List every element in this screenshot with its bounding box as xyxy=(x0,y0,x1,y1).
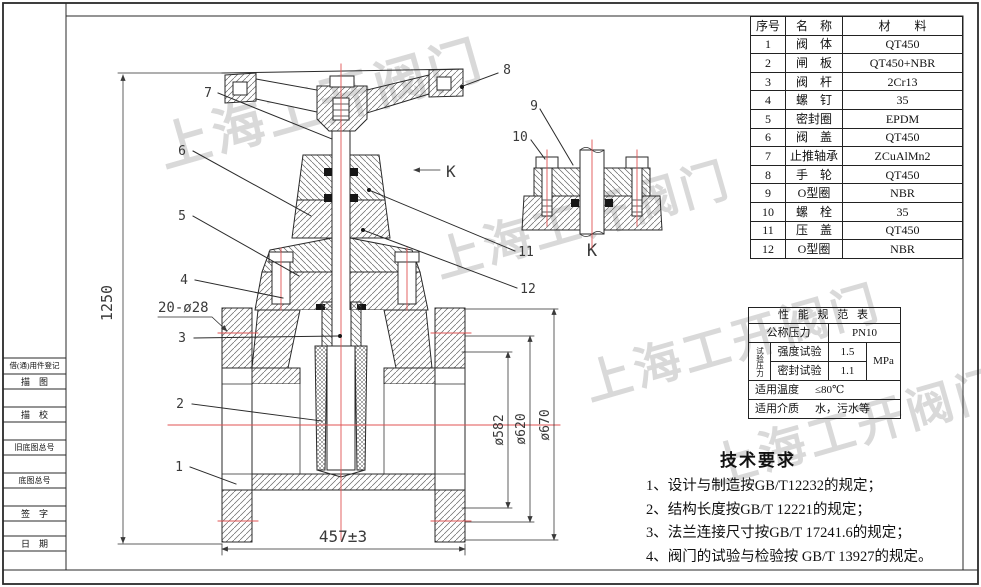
balloon-1: 1 xyxy=(175,460,183,475)
temp-value: ≤80℃ xyxy=(815,385,844,396)
balloon-9: 9 xyxy=(530,99,538,114)
strength-test-label: 强度试验 xyxy=(771,343,829,362)
balloon-11: 11 xyxy=(518,245,534,260)
table-row: 11压 盖QT450 xyxy=(751,221,963,240)
nominal-pressure-value: PN10 xyxy=(829,324,901,343)
table-row: 4螺 钉35 xyxy=(751,91,963,110)
strip-signature: 签 字 xyxy=(3,508,66,520)
balloon-10: 10 xyxy=(512,130,528,145)
medium-row: 适用介质 水，污水等 xyxy=(749,400,901,419)
col-material: 材 料 xyxy=(843,17,963,36)
strip-tracing: 描 图 xyxy=(3,376,66,388)
seal-test-label: 密封试验 xyxy=(771,362,829,381)
balloon-7: 7 xyxy=(204,86,212,101)
valve-main-view xyxy=(222,69,465,542)
table-row: 2闸 板QT450+NBR xyxy=(751,54,963,73)
dim-dia-outer: ø670 xyxy=(538,409,553,440)
nominal-pressure-label: 公称压力 xyxy=(749,324,829,343)
table-row: 7止推轴承ZCuAlMn2 xyxy=(751,147,963,166)
table-row: 10螺 栓35 xyxy=(751,202,963,221)
table-row: 8手 轮QT450 xyxy=(751,165,963,184)
technical-requirements: 技术要求 1、设计与制造按GB/T12232的规定； 2、结构长度按GB/T 1… xyxy=(632,446,964,569)
tech-item-1: 1、设计与制造按GB/T12232的规定； xyxy=(646,475,964,499)
dim-dia-inner: ø582 xyxy=(492,414,507,445)
table-row: 9O型圈NBR xyxy=(751,184,963,203)
col-name: 名 称 xyxy=(786,17,843,36)
strip-old-master-no: 旧底图总号 xyxy=(3,442,66,454)
balloon-12: 12 xyxy=(520,282,536,297)
dim-dia-bolt-circle: ø620 xyxy=(514,413,529,444)
parts-table-header: 序号 名 称 材 料 xyxy=(751,17,963,36)
temp-row: 适用温度 ≤80℃ xyxy=(749,381,901,400)
strip-borrow-record: 借(通)用件登记 xyxy=(3,360,66,372)
tech-item-2: 2、结构长度按GB/T 12221的规定； xyxy=(646,499,964,523)
balloon-5: 5 xyxy=(178,209,186,224)
seal-test-value: 1.1 xyxy=(829,362,867,381)
temp-label: 适用温度 xyxy=(755,385,799,396)
col-seq: 序号 xyxy=(751,17,786,36)
drawing-sheet: { "colors":{"centerline":"#e05353","line… xyxy=(0,0,981,587)
table-row: 1阀 体QT450 xyxy=(751,35,963,54)
balloon-3: 3 xyxy=(178,331,186,346)
balloon-8: 8 xyxy=(503,63,511,78)
performance-spec-table: 性 能 规 范 表 公称压力 PN10 试验压力 强度试验 1.5 MPa 密封… xyxy=(748,307,901,419)
dim-height: 1250 xyxy=(98,285,116,321)
tech-item-4: 4、阀门的试验与检验按 GB/T 13927的规定。 xyxy=(646,546,964,570)
table-row: 12O型圈NBR xyxy=(751,240,963,259)
test-pressure-label: 试验压力 xyxy=(749,343,771,381)
medium-label: 适用介质 xyxy=(755,404,799,415)
strip-master-no: 底图总号 xyxy=(3,475,66,487)
strip-trace-check: 描 校 xyxy=(3,409,66,421)
pressure-unit: MPa xyxy=(867,343,901,381)
strip-date: 日 期 xyxy=(3,538,66,550)
table-row: 3阀 杆2Cr13 xyxy=(751,72,963,91)
dim-face-to-face: 457±3 xyxy=(319,527,367,546)
strength-test-value: 1.5 xyxy=(829,343,867,362)
view-k-label: K xyxy=(446,162,456,181)
tech-requirements-title: 技术要求 xyxy=(720,446,964,471)
balloon-2: 2 xyxy=(176,397,184,412)
medium-value: 水，污水等 xyxy=(815,404,870,415)
table-row: 5密封圈EPDM xyxy=(751,109,963,128)
dim-bolt-holes: 20-ø28 xyxy=(158,300,209,316)
parts-table: 序号 名 称 材 料 1阀 体QT4502闸 板QT450+NBR3阀 杆2Cr… xyxy=(750,16,963,259)
spec-title: 性 能 规 范 表 xyxy=(749,308,901,324)
balloon-4: 4 xyxy=(180,273,188,288)
tech-item-3: 3、法兰连接尺寸按GB/T 17241.6的规定； xyxy=(646,522,964,546)
balloon-6: 6 xyxy=(178,144,186,159)
table-row: 6阀 盖QT450 xyxy=(751,128,963,147)
